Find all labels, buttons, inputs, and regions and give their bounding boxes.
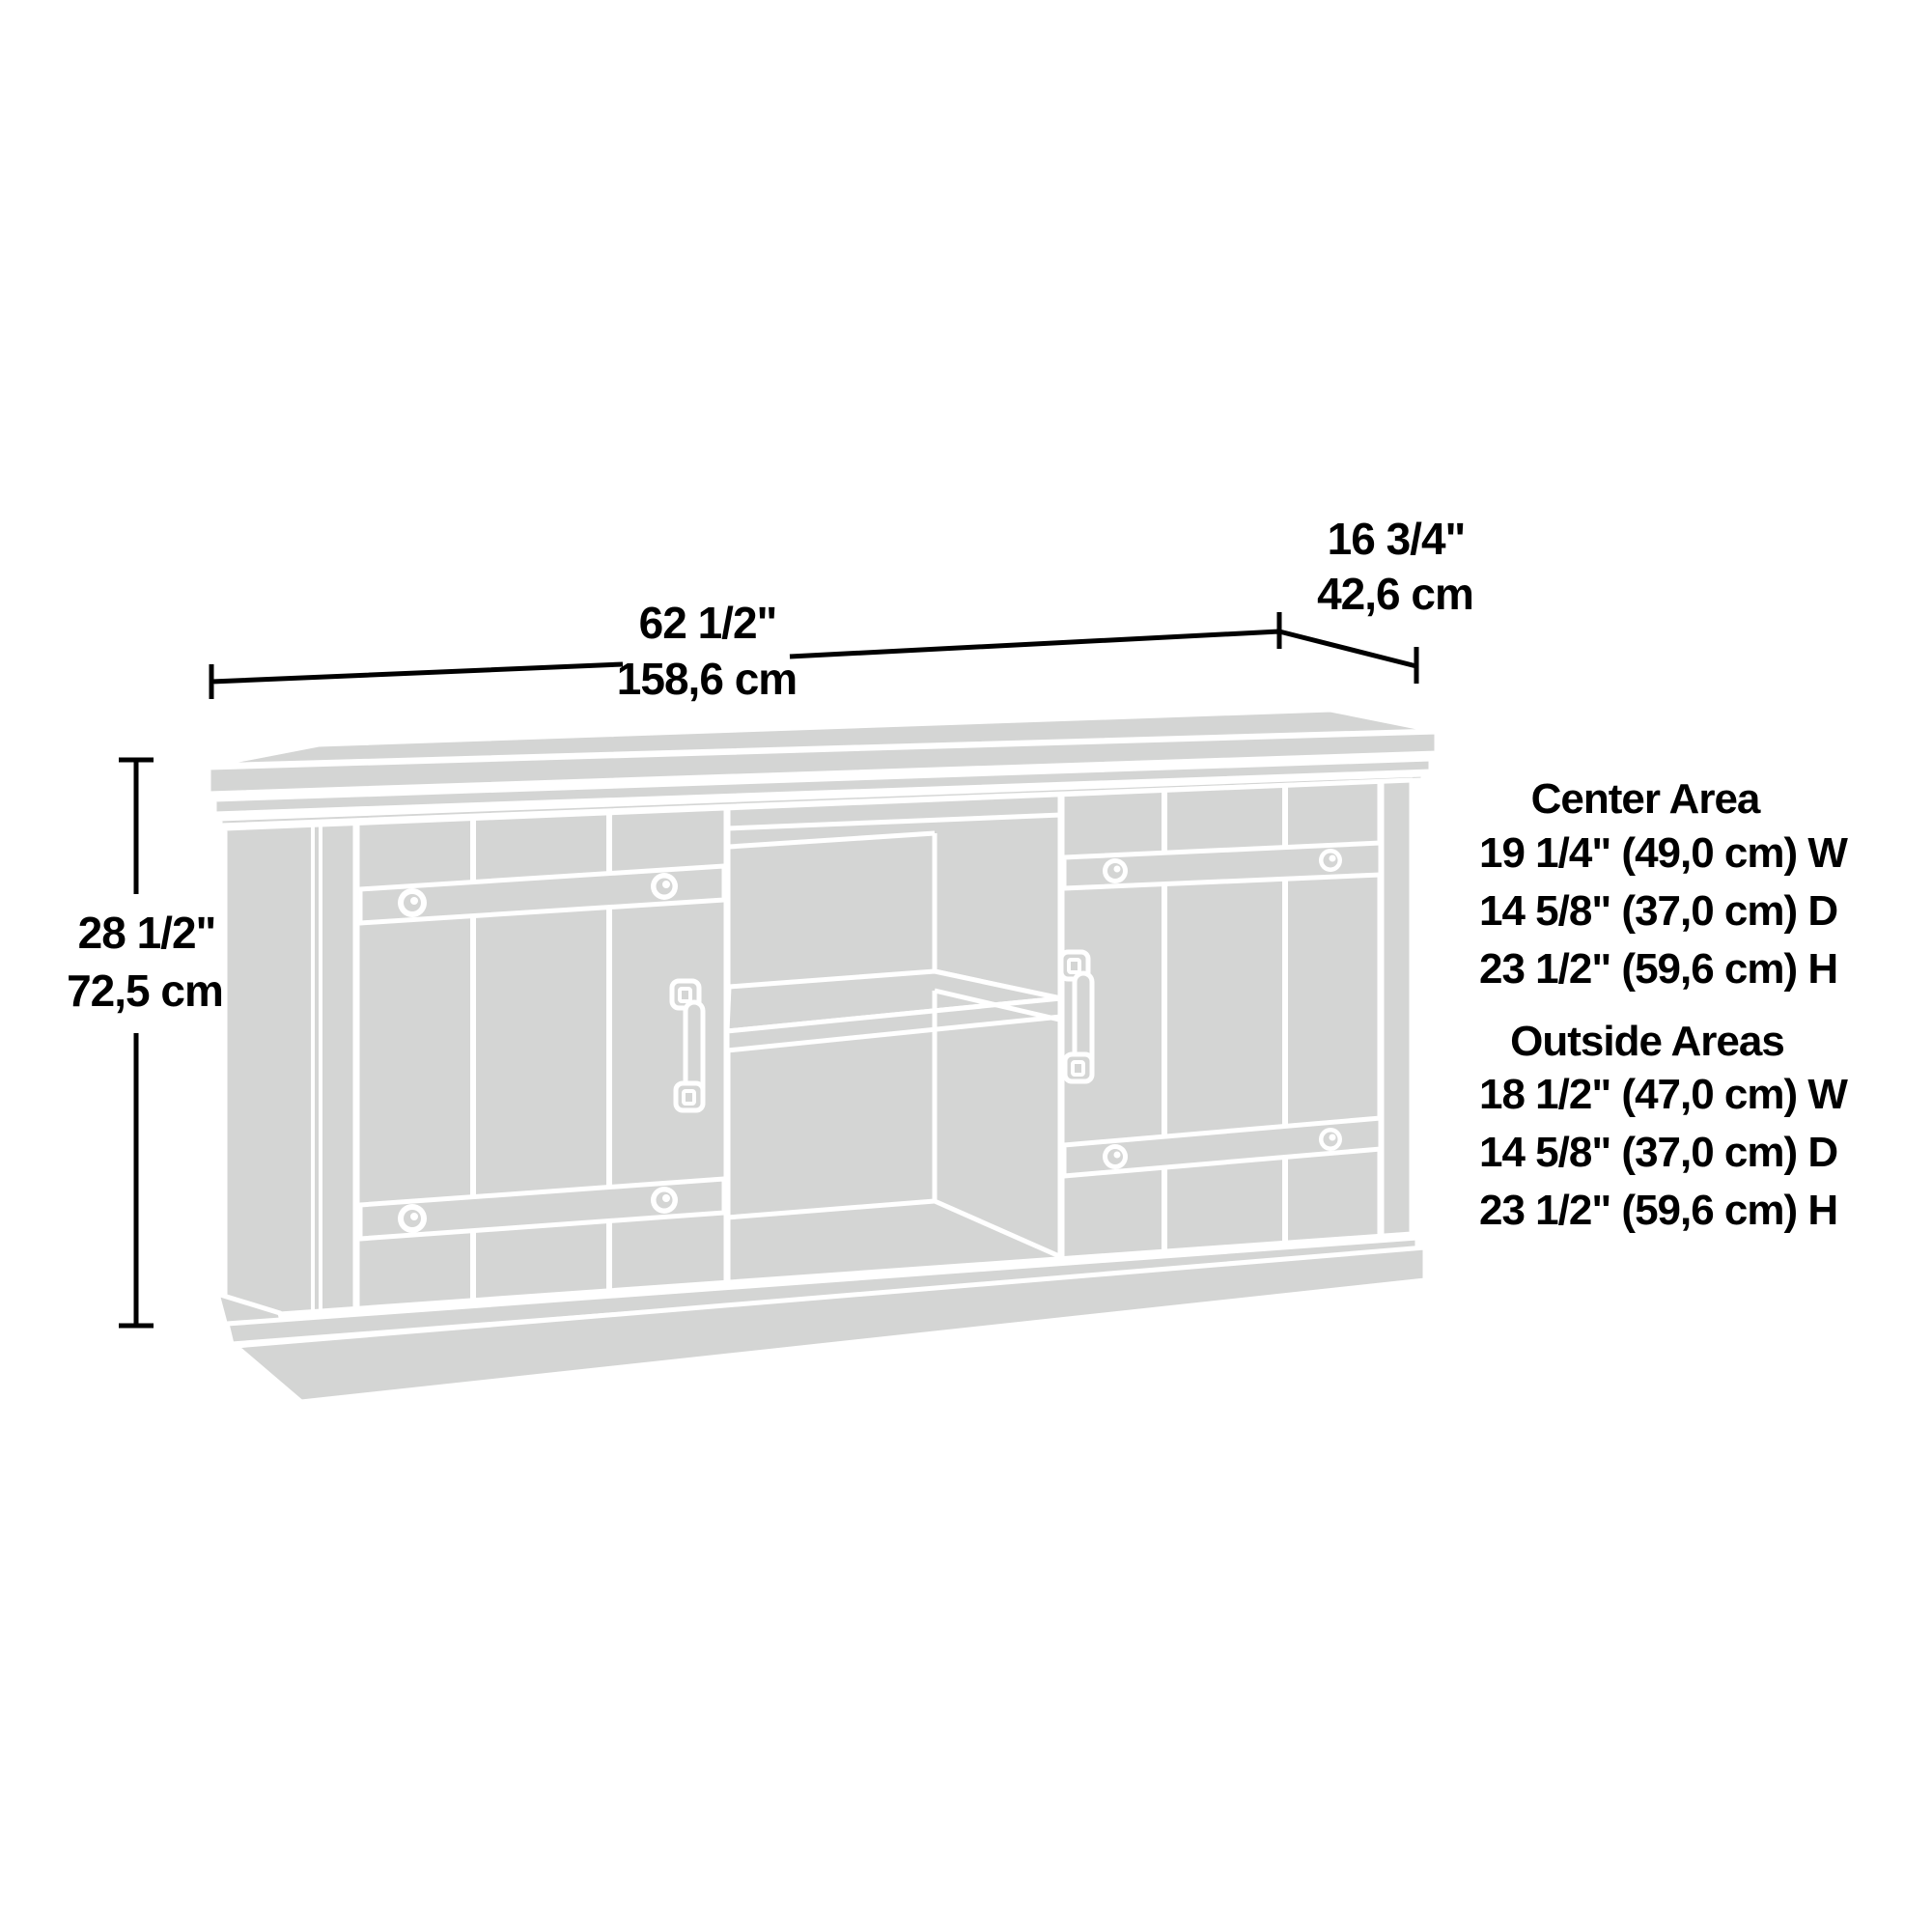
screw-icon xyxy=(398,888,427,917)
screw-icon xyxy=(1103,1144,1128,1169)
width-dimension-inches: 62 1/2" xyxy=(639,598,777,648)
center-area-title: Center Area xyxy=(1531,775,1761,823)
screw-icon xyxy=(398,1204,427,1233)
depth-dimension-inches: 16 3/4" xyxy=(1328,514,1466,564)
center-area-spec-depth: 14 5/8" (37,0 cm) D xyxy=(1479,887,1837,935)
height-dimension-inches: 28 1/2" xyxy=(78,908,216,958)
screw-icon xyxy=(1103,858,1128,883)
screw-icon xyxy=(651,873,678,900)
area-spec-block: Center Area 19 1/4" (49,0 cm) W 14 5/8" … xyxy=(1479,775,1848,1234)
outside-areas-spec-width: 18 1/2" (47,0 cm) W xyxy=(1479,1071,1848,1118)
cabinet-drawing xyxy=(209,710,1437,1402)
height-dimension-line xyxy=(119,760,154,1326)
screw-icon xyxy=(1319,1128,1342,1151)
center-area-spec-height: 23 1/2" (59,6 cm) H xyxy=(1479,945,1837,993)
outside-areas-title: Outside Areas xyxy=(1510,1018,1784,1065)
height-dimension-metric: 72,5 cm xyxy=(67,966,223,1016)
furniture-dimension-diagram-page: 62 1/2" 158,6 cm 16 3/4" 42,6 cm 28 1/2"… xyxy=(0,0,1932,1932)
screw-icon xyxy=(1319,849,1342,872)
center-area-spec-width: 19 1/4" (49,0 cm) W xyxy=(1479,829,1848,877)
screw-icon xyxy=(651,1187,678,1214)
width-dimension-metric: 158,6 cm xyxy=(617,654,797,704)
depth-dimension-metric: 42,6 cm xyxy=(1317,569,1473,619)
depth-dimension-line xyxy=(1279,631,1416,684)
outside-areas-spec-height: 23 1/2" (59,6 cm) H xyxy=(1479,1187,1837,1234)
furniture-dimension-diagram: 62 1/2" 158,6 cm 16 3/4" 42,6 cm 28 1/2"… xyxy=(0,0,1932,1932)
outside-areas-spec-depth: 14 5/8" (37,0 cm) D xyxy=(1479,1129,1837,1176)
